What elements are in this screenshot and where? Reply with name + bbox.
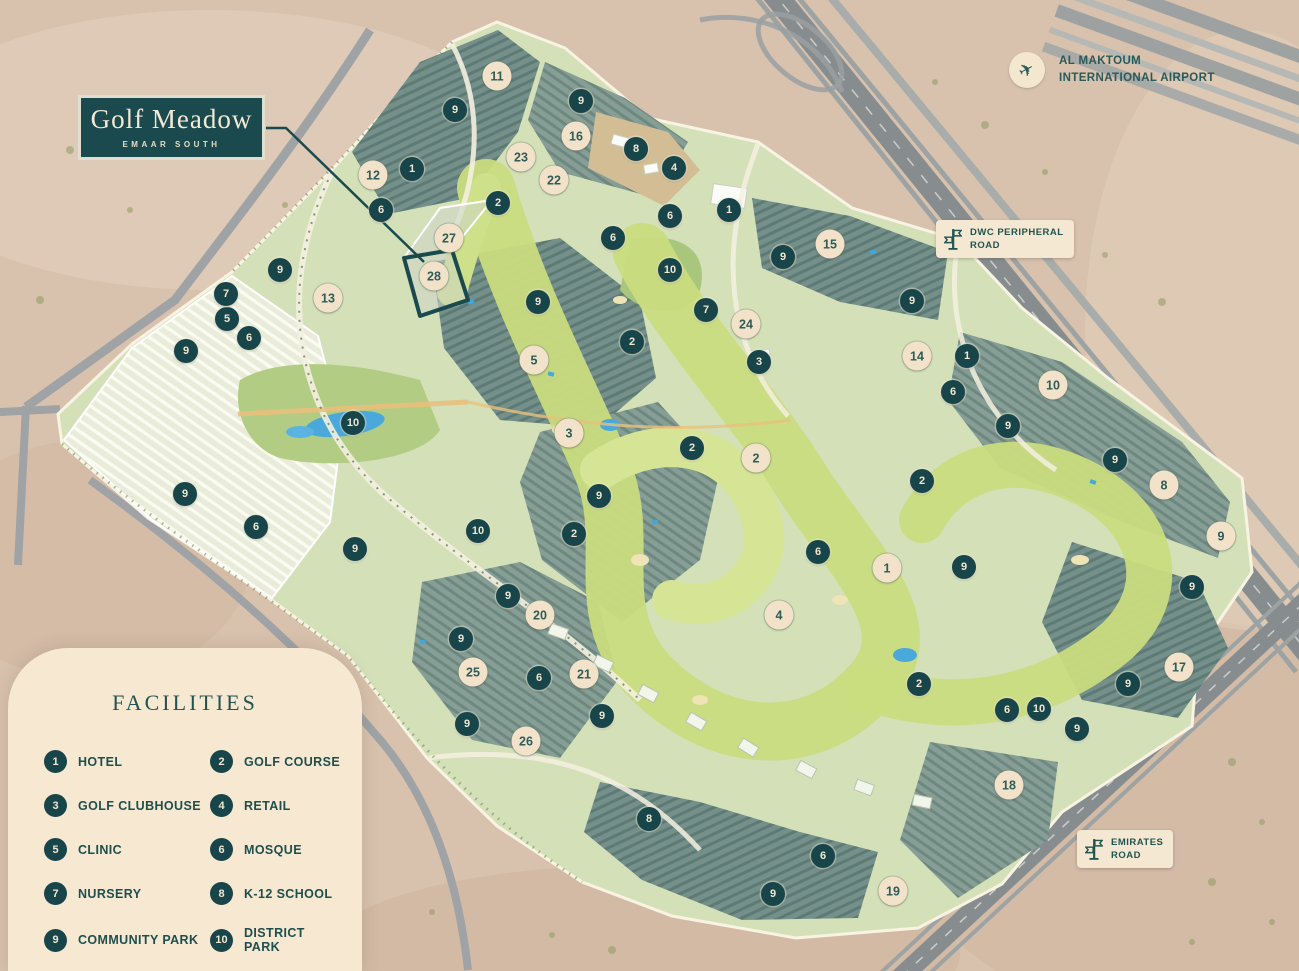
- road-sign-line1: EMIRATES: [1111, 836, 1163, 849]
- airport-name: AL MAKTOUM INTERNATIONAL AIRPORT: [1059, 53, 1215, 87]
- plot-marker-16[interactable]: 16: [562, 122, 591, 151]
- facility-marker-10[interactable]: 10: [1027, 697, 1051, 721]
- facility-marker-5[interactable]: 5: [215, 307, 239, 331]
- facility-marker-9[interactable]: 9: [587, 484, 611, 508]
- legend-item-golf-course: 2GOLF COURSE: [210, 750, 344, 773]
- signpost-icon: [944, 226, 962, 252]
- facility-marker-9[interactable]: 9: [343, 537, 367, 561]
- legend-number-badge: 7: [44, 882, 67, 905]
- plot-marker-26[interactable]: 26: [512, 727, 541, 756]
- legend-grid: 1HOTEL2GOLF COURSE3GOLF CLUBHOUSE4RETAIL…: [44, 750, 344, 954]
- facility-marker-7[interactable]: 7: [214, 282, 238, 306]
- plot-marker-2[interactable]: 2: [742, 444, 771, 473]
- plot-marker-18[interactable]: 18: [995, 771, 1024, 800]
- facility-marker-6[interactable]: 6: [811, 844, 835, 868]
- legend-item-clinic: 5CLINIC: [44, 838, 210, 861]
- facility-marker-9[interactable]: 9: [173, 482, 197, 506]
- facility-marker-9[interactable]: 9: [1065, 717, 1089, 741]
- road-sign-line2: ROAD: [1111, 849, 1163, 862]
- facility-marker-10[interactable]: 10: [466, 519, 490, 543]
- facility-marker-2[interactable]: 2: [562, 522, 586, 546]
- legend-item-label: DISTRICT PARK: [244, 926, 344, 954]
- facility-marker-6[interactable]: 6: [995, 698, 1019, 722]
- legend-title: FACILITIES: [44, 690, 326, 716]
- plot-marker-3[interactable]: 3: [555, 419, 584, 448]
- legend-number-badge: 5: [44, 838, 67, 861]
- facility-marker-9[interactable]: 9: [443, 98, 467, 122]
- legend-item-label: MOSQUE: [244, 843, 302, 857]
- facility-marker-7[interactable]: 7: [694, 298, 718, 322]
- plot-marker-19[interactable]: 19: [879, 877, 908, 906]
- plot-marker-25[interactable]: 25: [459, 658, 488, 687]
- facility-marker-2[interactable]: 2: [910, 469, 934, 493]
- facility-marker-9[interactable]: 9: [900, 289, 924, 313]
- facility-marker-6[interactable]: 6: [658, 204, 682, 228]
- emirates-road-sign: EMIRATES ROAD: [1077, 830, 1173, 868]
- plot-marker-20[interactable]: 20: [526, 601, 555, 630]
- plot-marker-17[interactable]: 17: [1165, 653, 1194, 682]
- facility-marker-6[interactable]: 6: [806, 540, 830, 564]
- road-sign-text: EMIRATES ROAD: [1111, 836, 1163, 862]
- facility-marker-1[interactable]: 1: [955, 344, 979, 368]
- facilities-legend: FACILITIES 1HOTEL2GOLF COURSE3GOLF CLUBH…: [8, 648, 362, 971]
- facility-marker-9[interactable]: 9: [590, 704, 614, 728]
- facility-marker-9[interactable]: 9: [496, 584, 520, 608]
- facility-marker-1[interactable]: 1: [717, 198, 741, 222]
- facility-marker-6[interactable]: 6: [527, 666, 551, 690]
- legend-item-label: CLINIC: [78, 843, 122, 857]
- legend-item-label: GOLF CLUBHOUSE: [78, 799, 201, 813]
- legend-number-badge: 6: [210, 838, 233, 861]
- plot-marker-10[interactable]: 10: [1039, 371, 1068, 400]
- facility-marker-9[interactable]: 9: [1180, 575, 1204, 599]
- legend-number-badge: 2: [210, 750, 233, 773]
- road-sign-line2: ROAD: [970, 239, 1064, 252]
- plot-marker-23[interactable]: 23: [507, 143, 536, 172]
- plot-marker-24[interactable]: 24: [732, 310, 761, 339]
- facility-marker-9[interactable]: 9: [1116, 672, 1140, 696]
- legend-item-label: NURSERY: [78, 887, 141, 901]
- masterplan-canvas: 1112222223456666666666778899999999999999…: [0, 0, 1299, 971]
- facility-marker-9[interactable]: 9: [455, 712, 479, 736]
- airport-name-line2: INTERNATIONAL AIRPORT: [1059, 70, 1215, 87]
- facility-marker-6[interactable]: 6: [244, 515, 268, 539]
- plot-marker-11[interactable]: 11: [483, 62, 512, 91]
- signpost-icon: [1085, 836, 1103, 862]
- plot-marker-4[interactable]: 4: [765, 601, 794, 630]
- facility-marker-2[interactable]: 2: [907, 672, 931, 696]
- plot-marker-22[interactable]: 22: [540, 166, 569, 195]
- legend-number-badge: 3: [44, 794, 67, 817]
- facility-marker-1[interactable]: 1: [400, 157, 424, 181]
- plot-marker-14[interactable]: 14: [903, 342, 932, 371]
- plot-marker-13[interactable]: 13: [314, 284, 343, 313]
- legend-number-badge: 9: [44, 929, 67, 952]
- legend-item-label: COMMUNITY PARK: [78, 933, 198, 947]
- legend-item-k-12-school: 8K-12 SCHOOL: [210, 882, 344, 905]
- facility-marker-8[interactable]: 8: [637, 807, 661, 831]
- airport-name-line1: AL MAKTOUM: [1059, 53, 1215, 70]
- facility-marker-9[interactable]: 9: [771, 245, 795, 269]
- legend-item-golf-clubhouse: 3GOLF CLUBHOUSE: [44, 794, 210, 817]
- airport-label: ✈ AL MAKTOUM INTERNATIONAL AIRPORT: [1009, 52, 1215, 88]
- plot-marker-12[interactable]: 12: [359, 161, 388, 190]
- legend-item-community-park: 9COMMUNITY PARK: [44, 926, 210, 954]
- road-sign-line1: DWC PERIPHERAL: [970, 226, 1064, 239]
- brand-logo: Golf Meadow EMAAR SOUTH: [78, 95, 265, 160]
- facility-marker-9[interactable]: 9: [761, 882, 785, 906]
- facility-marker-2[interactable]: 2: [486, 191, 510, 215]
- legend-item-label: RETAIL: [244, 799, 291, 813]
- plot-marker-27[interactable]: 27: [435, 224, 464, 253]
- legend-number-badge: 10: [210, 929, 233, 952]
- facility-marker-6[interactable]: 6: [601, 226, 625, 250]
- plot-marker-28[interactable]: 28: [420, 262, 449, 291]
- facility-marker-6[interactable]: 6: [369, 198, 393, 222]
- legend-item-nursery: 7NURSERY: [44, 882, 210, 905]
- facility-marker-10[interactable]: 10: [658, 258, 682, 282]
- legend-item-label: GOLF COURSE: [244, 755, 340, 769]
- facility-marker-2[interactable]: 2: [680, 436, 704, 460]
- facility-marker-8[interactable]: 8: [624, 137, 648, 161]
- legend-number-badge: 4: [210, 794, 233, 817]
- facility-marker-9[interactable]: 9: [996, 414, 1020, 438]
- legend-item-hotel: 1HOTEL: [44, 750, 210, 773]
- plot-marker-5[interactable]: 5: [520, 346, 549, 375]
- facility-marker-9[interactable]: 9: [952, 555, 976, 579]
- legend-number-badge: 8: [210, 882, 233, 905]
- logo-subtitle: EMAAR SOUTH: [122, 140, 220, 149]
- facility-marker-9[interactable]: 9: [569, 89, 593, 113]
- road-sign-text: DWC PERIPHERAL ROAD: [970, 226, 1064, 252]
- legend-item-district-park: 10DISTRICT PARK: [210, 926, 344, 954]
- facility-marker-2[interactable]: 2: [620, 330, 644, 354]
- facility-marker-9[interactable]: 9: [449, 627, 473, 651]
- plot-marker-21[interactable]: 21: [570, 660, 599, 689]
- facility-marker-10[interactable]: 10: [341, 411, 365, 435]
- airplane-icon: ✈: [1009, 52, 1045, 88]
- plot-marker-8[interactable]: 8: [1150, 471, 1179, 500]
- legend-item-label: HOTEL: [78, 755, 122, 769]
- facility-marker-9[interactable]: 9: [1103, 448, 1127, 472]
- legend-number-badge: 1: [44, 750, 67, 773]
- legend-item-retail: 4RETAIL: [210, 794, 344, 817]
- facility-marker-9[interactable]: 9: [268, 258, 292, 282]
- plot-marker-9[interactable]: 9: [1207, 522, 1236, 551]
- facility-marker-9[interactable]: 9: [174, 339, 198, 363]
- legend-item-mosque: 6MOSQUE: [210, 838, 344, 861]
- logo-title: Golf Meadow: [91, 106, 253, 133]
- facility-marker-4[interactable]: 4: [662, 156, 686, 180]
- dwc-peripheral-road-sign: DWC PERIPHERAL ROAD: [936, 220, 1074, 258]
- legend-item-label: K-12 SCHOOL: [244, 887, 332, 901]
- facility-marker-6[interactable]: 6: [941, 380, 965, 404]
- plot-marker-1[interactable]: 1: [873, 554, 902, 583]
- plot-marker-15[interactable]: 15: [816, 230, 845, 259]
- facility-marker-3[interactable]: 3: [747, 350, 771, 374]
- facility-marker-9[interactable]: 9: [526, 290, 550, 314]
- facility-marker-6[interactable]: 6: [237, 326, 261, 350]
